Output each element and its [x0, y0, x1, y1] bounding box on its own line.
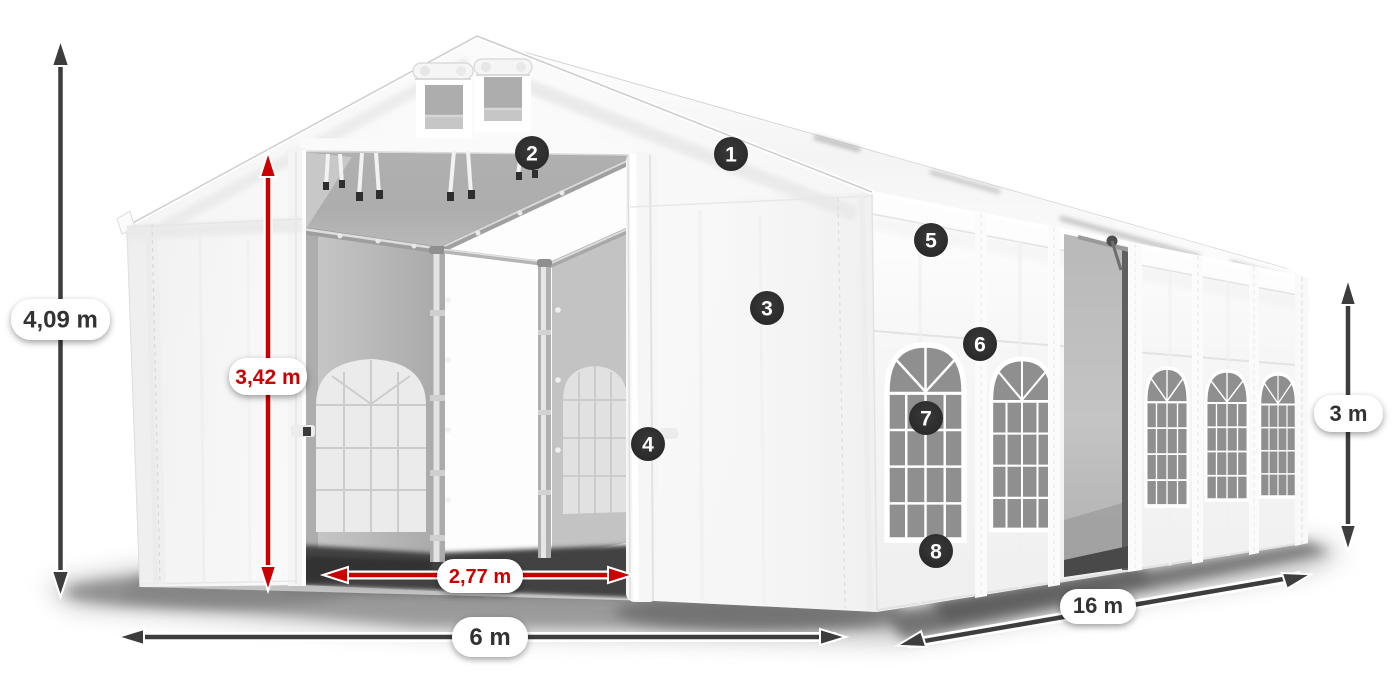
- svg-text:6: 6: [974, 334, 986, 357]
- svg-text:3 m: 3 m: [1330, 401, 1368, 426]
- svg-text:4,09 m: 4,09 m: [23, 307, 98, 334]
- svg-text:5: 5: [925, 230, 937, 253]
- svg-text:8: 8: [930, 541, 942, 564]
- svg-text:4: 4: [642, 434, 654, 457]
- svg-text:16 m: 16 m: [1073, 593, 1123, 618]
- svg-text:2,77 m: 2,77 m: [449, 566, 511, 588]
- svg-text:1: 1: [725, 144, 737, 167]
- svg-text:2: 2: [526, 143, 538, 166]
- svg-text:3: 3: [761, 298, 773, 321]
- svg-text:6 m: 6 m: [469, 624, 510, 651]
- svg-text:3,42 m: 3,42 m: [235, 366, 300, 389]
- svg-text:7: 7: [920, 408, 932, 431]
